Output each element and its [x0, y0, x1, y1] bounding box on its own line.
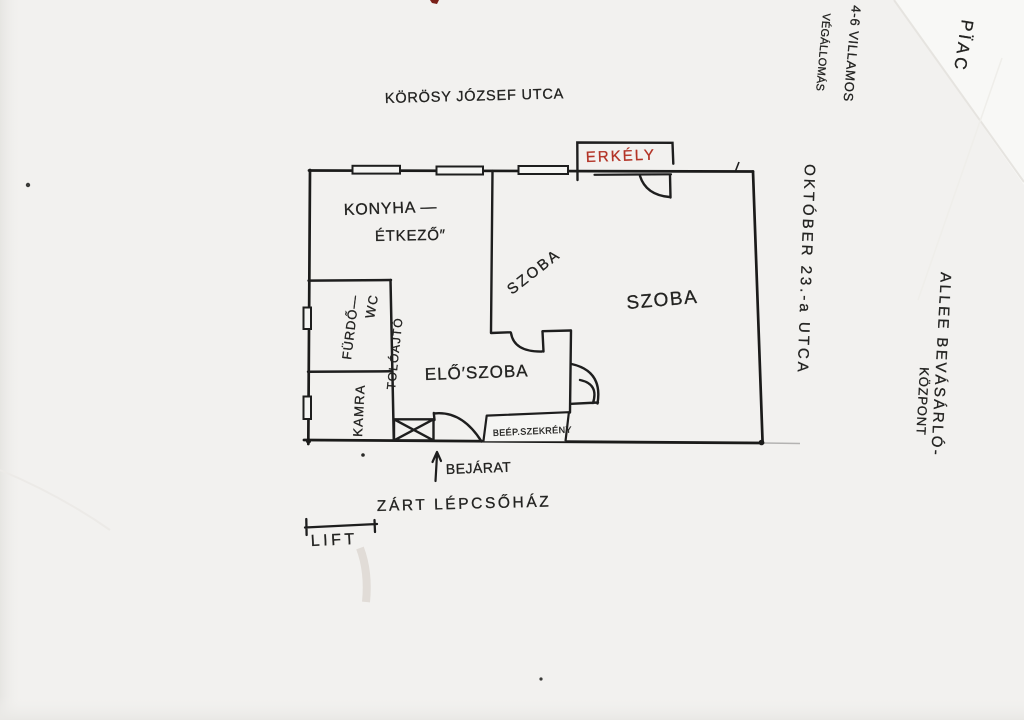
svg-text:LIFT: LIFT — [310, 531, 358, 550]
svg-text:ERKÉLY: ERKÉLY — [586, 147, 657, 166]
svg-text:KONYHA —: KONYHA — — [344, 199, 438, 219]
svg-text:BEJÁRAT: BEJÁRAT — [446, 459, 512, 477]
svg-text:ÉTKEZŐ″: ÉTKEZŐ″ — [375, 227, 446, 245]
svg-text:KAMRA: KAMRA — [350, 384, 368, 437]
svg-text:ELŐ′SZOBA: ELŐ′SZOBA — [424, 361, 528, 384]
